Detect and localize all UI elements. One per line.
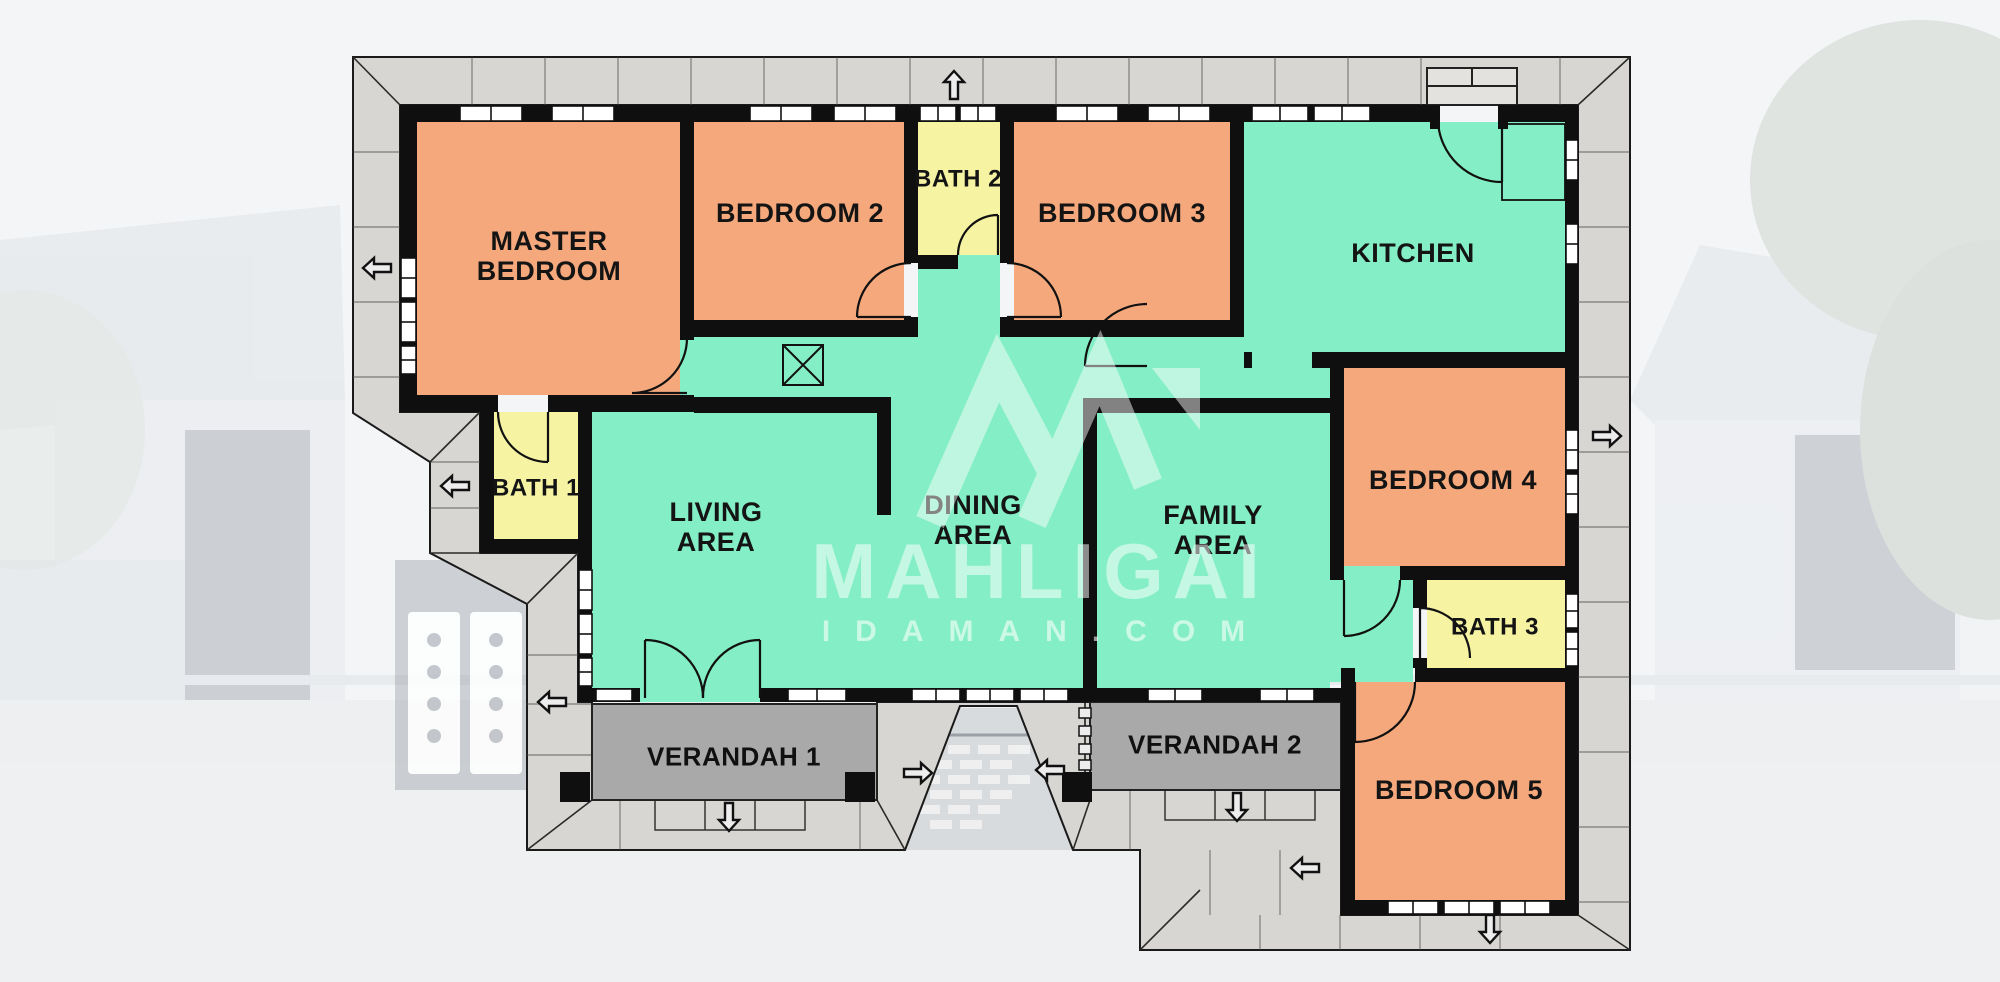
room-label-bedroom-2: BEDROOM 2 bbox=[716, 198, 884, 228]
room-label-dining-area: DINING AREA bbox=[918, 490, 1028, 550]
room-label-bath-2: BATH 2 bbox=[914, 167, 1002, 194]
room-label-master-bedroom: MASTER BEDROOM bbox=[464, 226, 634, 286]
room-label-bath-3: BATH 3 bbox=[1451, 615, 1539, 642]
room-label-bedroom-5: BEDROOM 5 bbox=[1375, 775, 1543, 805]
room-label-verandah-2: VERANDAH 2 bbox=[1128, 730, 1302, 759]
rear-porch bbox=[1427, 68, 1517, 105]
hallway bbox=[680, 337, 1330, 398]
room-label-bedroom-3: BEDROOM 3 bbox=[1038, 198, 1206, 228]
room-label-family-area: FAMILY AREA bbox=[1158, 500, 1268, 560]
room-label-verandah-1: VERANDAH 1 bbox=[647, 742, 821, 771]
room-label-bath-1: BATH 1 bbox=[492, 476, 580, 503]
room-label-bedroom-4: BEDROOM 4 bbox=[1369, 465, 1537, 495]
room-label-living-area: LIVING AREA bbox=[661, 497, 771, 557]
room-label-kitchen: KITCHEN bbox=[1351, 238, 1475, 268]
floor-plan-image: MASTER BEDROOM BEDROOM 2 BATH 2 BEDROOM … bbox=[0, 0, 2000, 982]
